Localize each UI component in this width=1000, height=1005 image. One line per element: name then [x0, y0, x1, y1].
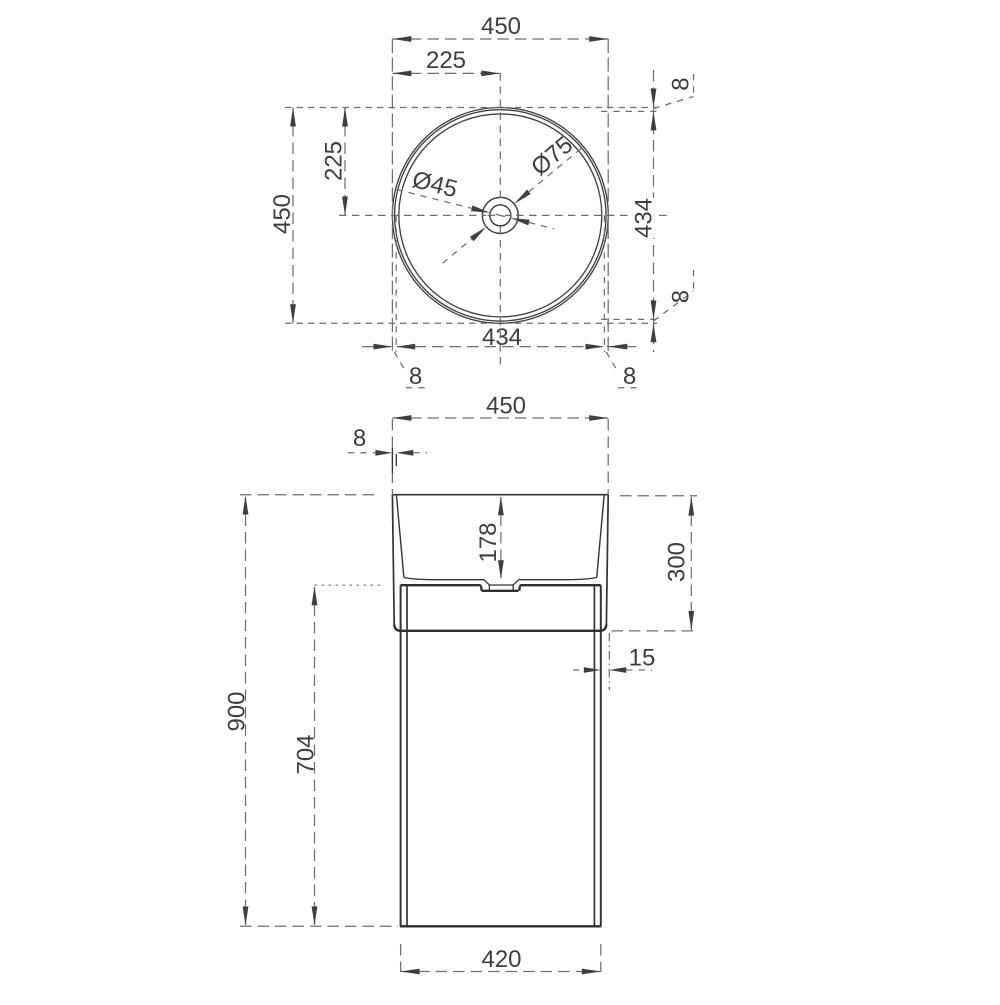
svg-text:8: 8	[668, 290, 695, 303]
svg-text:8: 8	[668, 77, 695, 90]
svg-text:178: 178	[475, 522, 502, 562]
svg-text:420: 420	[481, 946, 521, 973]
svg-text:8: 8	[623, 363, 636, 390]
svg-text:450: 450	[269, 194, 296, 234]
svg-text:900: 900	[224, 691, 251, 731]
svg-text:225: 225	[321, 141, 348, 181]
svg-text:15: 15	[629, 645, 656, 672]
svg-text:450: 450	[486, 393, 526, 420]
svg-text:450: 450	[481, 13, 521, 40]
svg-text:8: 8	[409, 363, 422, 390]
svg-text:434: 434	[631, 198, 658, 238]
svg-text:704: 704	[293, 734, 320, 774]
svg-text:225: 225	[426, 47, 466, 74]
svg-text:8: 8	[353, 425, 366, 452]
svg-text:300: 300	[664, 542, 691, 582]
svg-text:434: 434	[482, 324, 522, 351]
